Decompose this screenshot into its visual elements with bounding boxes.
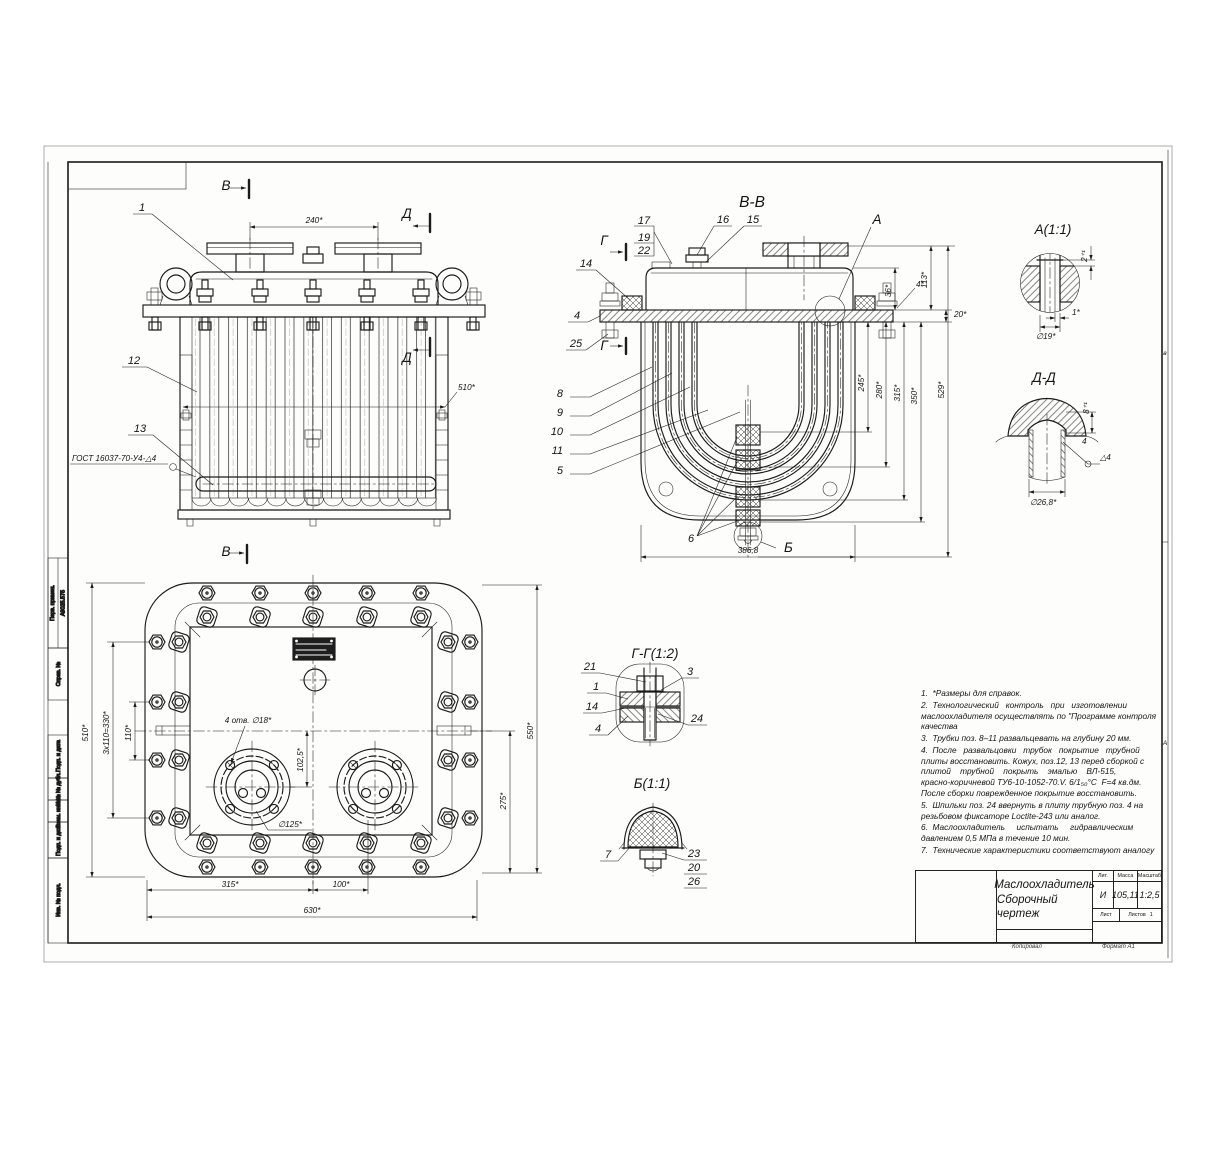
gg-pos-3: 3 [687,666,694,678]
section-marker-d-bottom: Д [400,350,412,365]
pos-label-5: 5 [557,465,564,477]
pos-label-13: 13 [134,423,147,435]
title-block: Маслоохладитель Сборочный чертеж Лит. Ма… [915,870,1162,943]
section-marker-b-bottom: В [221,544,230,559]
title-block-right: Лит. Масса Масштаб И 105,11 1:2,5 Лист Л… [1093,871,1161,942]
b11-pos-20: 20 [687,862,701,874]
weld-gost-note: ГОСТ 16037-70-У4-△4 [72,454,157,463]
plan-dim-1025: 102,5* [296,747,305,771]
vv-dim-350: 350* [910,387,919,405]
gg-pos-21: 21 [583,661,596,673]
detail-a-dim-1: 1* [1072,308,1081,317]
stamp-podp-1: Подп. и дата [56,740,62,772]
pos-label-15: 15 [747,214,760,226]
pos-label-19: 19 [638,232,650,244]
sheets-value: 1 [1150,912,1153,918]
section-marker-d-top: Д [400,206,412,221]
vv-dim-529: 529* [937,381,946,399]
vv-dim-315: 315* [893,384,902,402]
plan-dim-100: 100* [333,880,351,889]
title-block-bottom-empty [1093,922,1161,942]
vv-dim-245: 245* [857,374,866,393]
section-marker-b-top: В [221,178,230,193]
detail-dd-weld: △4 [1099,453,1111,462]
lit-value: И [1093,882,1114,908]
b11-pos-26: 26 [687,876,701,888]
stamp-podp-2: Подп. и дата [56,824,62,856]
stamp-perv-primen: Перв. примен. [50,585,56,621]
pos-label-12: 12 [128,355,140,367]
sheets-label: Листов [1128,912,1146,918]
stamp-vzam: Взам. инв. № [56,794,62,828]
plan-dim-630: 630* [304,906,322,915]
stamp-sprav: Справ. № [56,662,62,687]
footer-copied: Копировал [1012,944,1042,950]
scale-value: 1:2,5 [1138,882,1161,908]
vv-dim-280: 280* [875,381,884,400]
sheet-label: Лист [1093,909,1120,921]
pos-label-10: 10 [551,426,564,438]
plan-dim-315: 315* [222,880,240,889]
detail-b-title: Б(1:1) [634,776,671,791]
vv-dim-36: 36* [884,284,893,297]
b11-pos-23: 23 [687,848,701,860]
plan-holes-callout: 4 отв. ∅18* [225,716,272,725]
pos-label-8: 8 [557,388,564,400]
mass-value: 105,11 [1114,882,1138,908]
plan-dim-550: 550* [526,722,535,740]
section-gg-title: Г-Г(1:2) [632,646,679,661]
vv-dim-20: 20* [953,310,967,319]
footer-format: Формат А1 [1102,944,1135,950]
pos-label-22: 22 [637,245,650,257]
detail-a-dim-d19: ∅19* [1036,332,1056,341]
gg-pos-1: 1 [593,681,599,693]
gg-pos-4: 4 [595,723,601,735]
note-4: 4. После развальцовки трубок покрытие тр… [921,745,1163,799]
title-block-empty-row [997,929,1092,942]
gg-pos-24: 24 [690,713,703,725]
detail-dd-dim-d268: ∅26,8* [1030,498,1057,507]
front-dim-240-label: 240* [305,216,324,225]
pos-label-6: 6 [688,533,695,545]
section-vv-title: В-В [739,194,765,211]
pos-label-9: 9 [557,407,563,419]
pos-label-11: 11 [552,445,563,457]
technical-notes: 1. *Размеры для справок. 2. Технологичес… [921,688,1163,857]
detail-a-title: А(1:1) [1034,222,1072,237]
note-2: 2. Технологический контроль при изготовл… [921,700,1163,732]
note-7: 7. Технические характеристики соответств… [921,845,1163,856]
pos-label-17: 17 [638,215,651,227]
title-block-name-cell: Маслоохладитель Сборочный чертеж [997,871,1093,942]
front-dim-510-label: 510* [458,383,476,392]
drawing-canvas: в А Перв. примен. А9025.575 Справ. № Под… [0,0,1213,1176]
pos-label-25: 25 [569,338,583,350]
doc-name-line2: Сборочный чертеж [997,893,1092,922]
col-lit-header: Лит. [1093,871,1114,881]
zone-letter-top: в [1163,350,1167,357]
pos-label-16: 16 [717,214,730,226]
plan-dim-d125: ∅125* [278,820,303,829]
stamp-perv-value: А9025.575 [61,590,67,616]
doc-name-line1: Маслоохладитель [994,878,1094,892]
stamp-inv-podl: Инв. № подл. [56,883,62,917]
gg-pos-14: 14 [586,701,598,713]
plan-dim-110: 110* [124,724,133,741]
marker-a-label: А [871,212,881,227]
vv-dim-3868: 386,8 [738,546,759,555]
detail-a-dim-2: 2⁺¹ [1080,250,1089,263]
note-6: 6. Маслоохладитель испытать гидравлическ… [921,822,1163,844]
note-5: 5. Шпильки поз. 24 ввернуть в плиту труб… [921,800,1163,822]
col-scale-header: Масштаб [1138,871,1161,881]
pos-label-4: 4 [574,310,580,322]
detail-dd-dim-4: 4 [1082,437,1087,446]
note-1: 1. *Размеры для справок. [921,688,1163,699]
vv-dim-4: 4* [916,280,925,289]
title-block-signatures [916,871,997,942]
plan-dim-330: 3x110=330* [102,711,111,755]
plan-dim-510: 510* [81,724,90,742]
marker-b-detail-label: Б [784,540,793,555]
pos-label-14: 14 [580,258,592,270]
section-dd-title: Д-Д [1030,370,1056,385]
b11-pos-7: 7 [605,849,612,861]
plan-dim-275: 275* [499,792,508,811]
note-3: 3. Трубки поз. 8–11 развальцевать на глу… [921,733,1163,744]
sheets-count: Листов 1 [1120,909,1161,921]
col-mass-header: Масса [1114,871,1138,881]
pos-label-1: 1 [139,202,145,214]
drawing-sheet: { "sheet": { "zone_letter_top": "в", "zo… [0,0,1213,1176]
detail-dd-dim-8: 8⁺¹ [1082,402,1091,414]
